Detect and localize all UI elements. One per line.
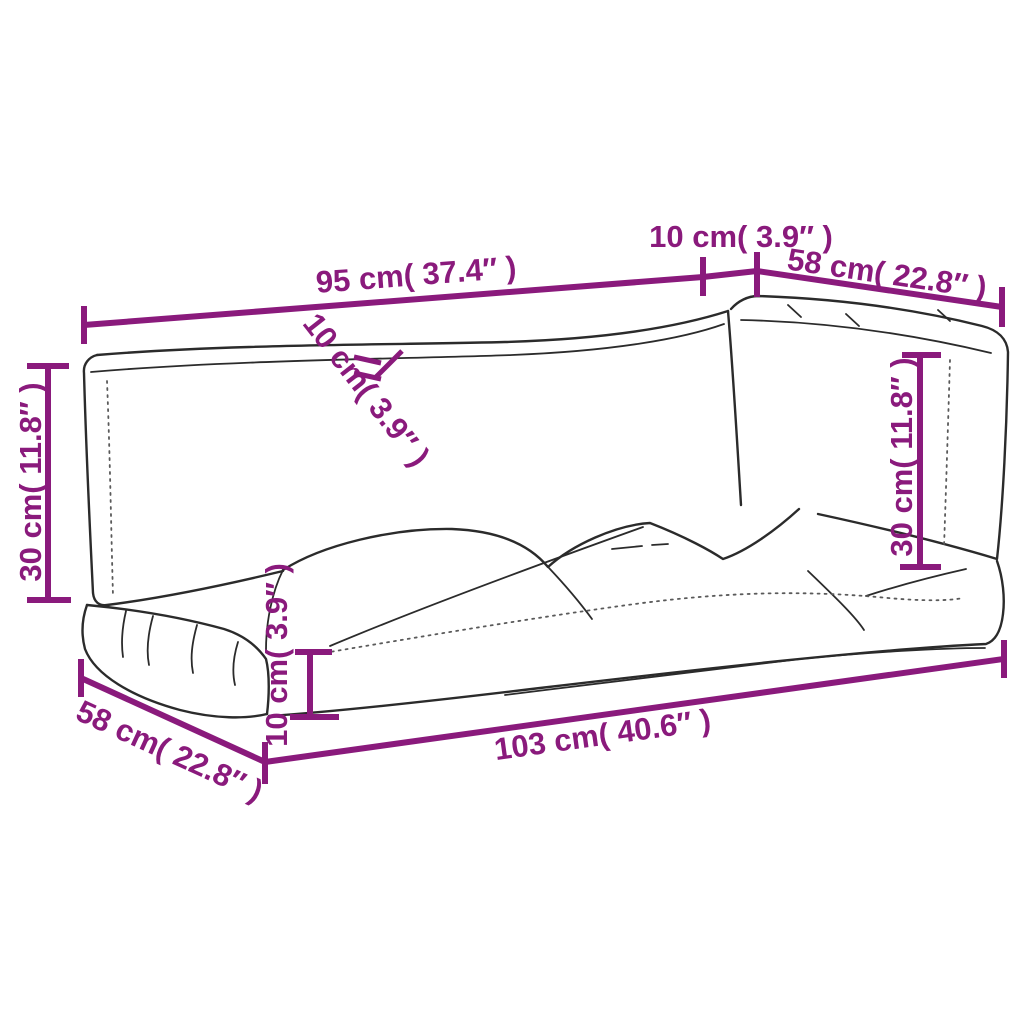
back-cushion-right-body-outline [731,296,1008,559]
back-cushion-left-body-outline [84,355,283,605]
back-cushion-right [731,296,1008,559]
seat-cushion-back-edge [283,509,799,570]
dim-back-right-height-label: 30 cm( 11.8″ ) [884,357,919,556]
back-cushion-left-right-edge [728,311,741,505]
small-cushion-ridge [87,605,269,714]
dim-back-left-width: 95 cm( 37.4″ ) [84,249,703,344]
dim-seat-thickness-label: 10 cm( 3.9″ ) [259,563,294,747]
back-cushion-right-roll-line [741,320,991,353]
seat-cushion-long-crease [330,527,643,646]
seat-cushion-right-crease [808,571,864,630]
back-cushion-right-tuft-strokes [788,305,950,326]
dim-back-left-thickness-label: 10 cm( 3.9″ ) [296,307,437,473]
dim-back-gap-line [703,271,757,277]
dim-back-right-width: 58 cm( 22.8″ ) [757,242,1002,327]
back-cushion-right-seam-dotted [944,360,950,547]
seat-cushion-right-fold-line [866,569,966,596]
dim-back-right-width-label: 58 cm( 22.8″ ) [785,242,989,306]
dim-back-right-height: 30 cm( 11.8″ ) [884,355,941,567]
dim-seat-depth: 58 cm( 22.8″ ) [61,659,273,809]
seat-cushion-right-and-front-edge [269,561,1004,716]
cushion-dimension-diagram: 95 cm( 37.4″ ) 10 cm( 3.9″ ) 58 cm( 22.8… [0,0,1024,1024]
dim-back-left-thickness: 10 cm( 3.9″ ) [296,307,437,473]
dim-seat-length: 103 cm( 40.6″ ) [265,640,1009,799]
dim-seat-thickness: 10 cm( 3.9″ ) [259,563,339,747]
seat-cushion-tuft-dashes [612,544,668,549]
seat-cushion-center-crease [549,568,592,619]
diagram-canvas: 95 cm( 37.4″ ) 10 cm( 3.9″ ) 58 cm( 22.8… [0,0,1024,1024]
dim-back-left-height-label: 30 cm( 11.8″ ) [13,382,48,581]
seat-cushion-small [83,605,269,717]
small-cushion-pleat-creases [122,611,238,685]
back-cushion-left-seam-dotted [107,381,113,596]
small-cushion-body-outline [83,605,267,717]
seat-cushion-front-seam-dotted [318,593,963,654]
dim-back-left-height: 30 cm( 11.8″ ) [13,366,71,600]
